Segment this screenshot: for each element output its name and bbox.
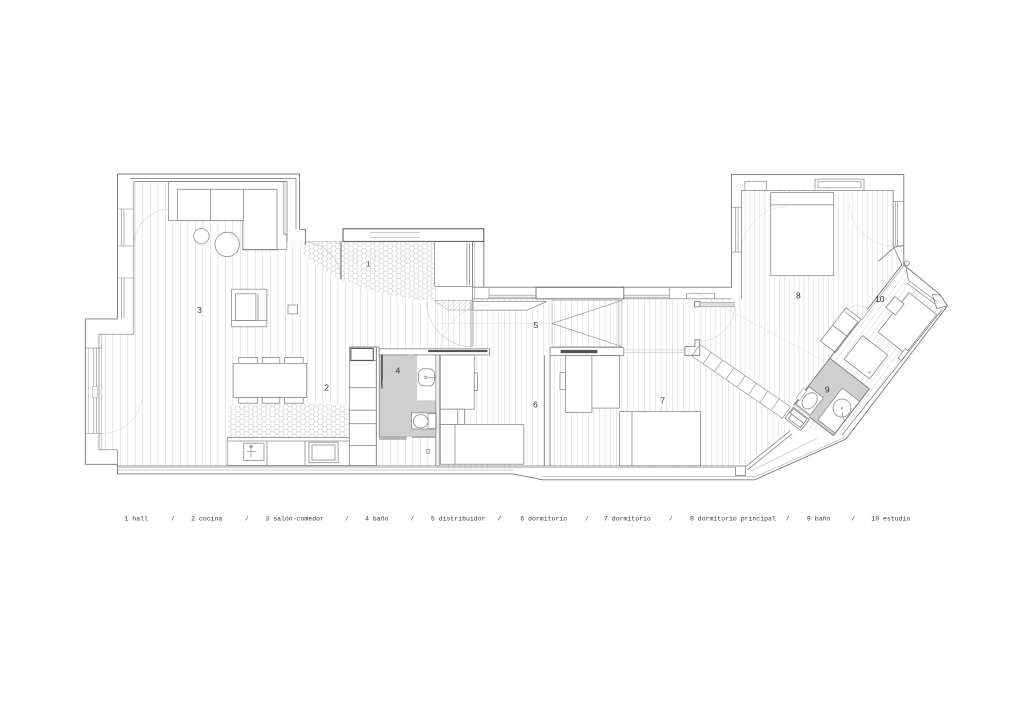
svg-text:/: /	[585, 516, 589, 523]
svg-text:5 distribuidor: 5 distribuidor	[431, 516, 486, 523]
svg-text:9: 9	[825, 385, 830, 395]
svg-text:/: /	[245, 516, 249, 523]
svg-text:7 dormitorio: 7 dormitorio	[604, 516, 651, 523]
svg-text:3: 3	[197, 305, 202, 315]
svg-text:8 dormitorio principal: 8 dormitorio principal	[690, 516, 776, 523]
svg-text:6 dormitorio: 6 dormitorio	[520, 516, 567, 523]
svg-text:4: 4	[396, 366, 401, 376]
svg-text:1 hall: 1 hall	[125, 516, 149, 523]
svg-text:7: 7	[660, 396, 665, 406]
svg-text:1: 1	[367, 262, 371, 269]
svg-text:/: /	[171, 516, 175, 523]
svg-text:2 cocina: 2 cocina	[191, 516, 222, 523]
svg-text:/: /	[669, 516, 673, 523]
svg-text:10 estudio: 10 estudio	[871, 516, 910, 523]
svg-text:/: /	[498, 516, 502, 523]
svg-text:2: 2	[324, 382, 329, 392]
svg-text:/: /	[851, 516, 855, 523]
svg-text:5: 5	[533, 320, 538, 330]
svg-text:4 baño: 4 baño	[365, 516, 389, 523]
svg-text:6: 6	[533, 400, 538, 410]
svg-text:8: 8	[796, 290, 801, 300]
svg-text:3 salón-comedor: 3 salón-comedor	[265, 516, 324, 523]
svg-text:/: /	[786, 516, 790, 523]
svg-text:9 baño: 9 baño	[807, 516, 831, 523]
svg-text:/: /	[410, 516, 414, 523]
svg-text:/: /	[345, 516, 349, 523]
svg-text:10: 10	[875, 294, 885, 304]
